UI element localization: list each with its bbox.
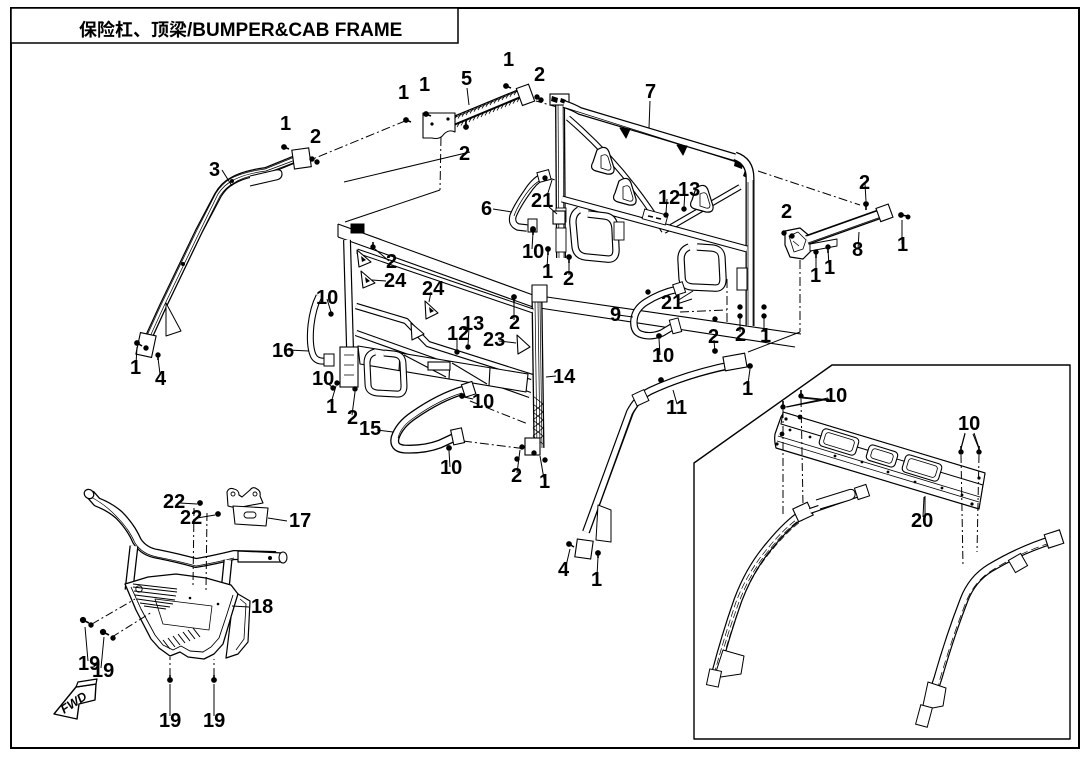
svg-text:8: 8 — [852, 239, 863, 261]
svg-text:1: 1 — [539, 471, 550, 493]
svg-text:19: 19 — [92, 660, 114, 682]
svg-text:10: 10 — [825, 385, 847, 407]
svg-text:14: 14 — [553, 366, 576, 388]
svg-text:4: 4 — [155, 368, 167, 390]
svg-text:10: 10 — [440, 457, 462, 479]
svg-text:23: 23 — [483, 329, 505, 351]
svg-text:4: 4 — [558, 559, 570, 581]
svg-text:6: 6 — [481, 198, 492, 220]
svg-text:/BUMPER&CAB FRAME: /BUMPER&CAB FRAME — [187, 20, 402, 41]
svg-text:1: 1 — [503, 49, 514, 71]
svg-text:10: 10 — [472, 391, 494, 413]
svg-text:18: 18 — [251, 596, 273, 618]
svg-text:2: 2 — [310, 126, 321, 148]
svg-text:5: 5 — [461, 68, 472, 90]
svg-text:15: 15 — [359, 418, 381, 440]
svg-text:2: 2 — [781, 201, 792, 223]
svg-text:2: 2 — [859, 172, 870, 194]
svg-text:10: 10 — [316, 287, 338, 309]
svg-text:1: 1 — [280, 113, 291, 135]
svg-text:13: 13 — [678, 179, 700, 201]
svg-text:2: 2 — [708, 326, 719, 348]
svg-text:1: 1 — [326, 396, 337, 418]
svg-text:1: 1 — [419, 74, 430, 96]
svg-text:16: 16 — [272, 340, 294, 362]
svg-text:24: 24 — [422, 278, 445, 300]
svg-text:2: 2 — [509, 312, 520, 334]
svg-text:2: 2 — [735, 324, 746, 346]
svg-text:3: 3 — [209, 159, 220, 181]
svg-text:11: 11 — [666, 397, 687, 419]
svg-text:17: 17 — [289, 510, 311, 532]
svg-text:10: 10 — [522, 241, 544, 263]
svg-text:1: 1 — [824, 257, 835, 279]
svg-text:10: 10 — [958, 413, 980, 435]
svg-text:2: 2 — [511, 465, 522, 487]
svg-text:2: 2 — [534, 64, 545, 86]
svg-text:1: 1 — [591, 569, 602, 591]
svg-text:10: 10 — [652, 345, 674, 367]
svg-text:12: 12 — [658, 187, 680, 209]
svg-text:21: 21 — [531, 190, 553, 212]
svg-text:24: 24 — [384, 270, 407, 292]
svg-text:1: 1 — [897, 234, 908, 256]
svg-text:2: 2 — [459, 143, 470, 165]
svg-text:20: 20 — [911, 510, 933, 532]
svg-text:1: 1 — [398, 82, 409, 104]
svg-text:1: 1 — [760, 325, 771, 347]
svg-text:1: 1 — [130, 357, 141, 379]
svg-text:13: 13 — [462, 313, 484, 335]
svg-text:7: 7 — [645, 81, 656, 103]
